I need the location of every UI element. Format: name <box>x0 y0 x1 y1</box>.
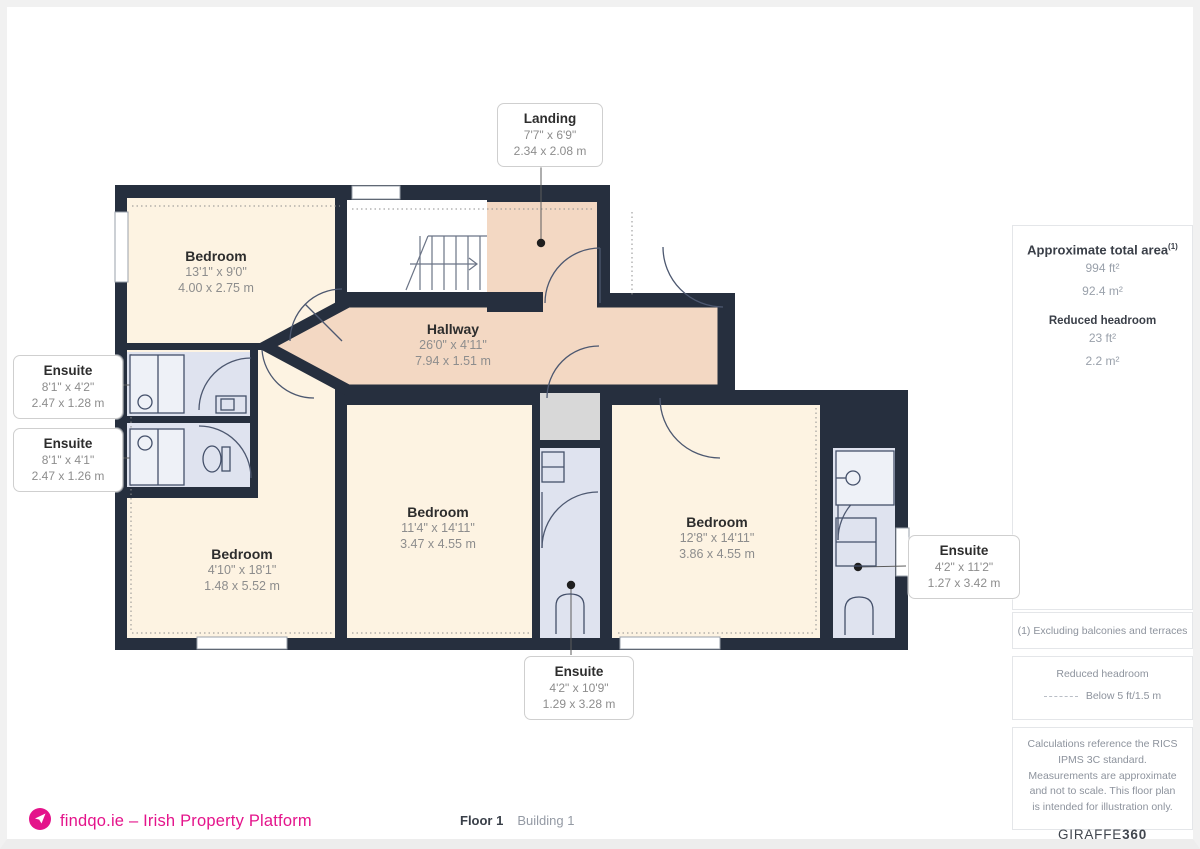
room-dims-ft: 11'4" x 14'11" <box>400 521 476 537</box>
room-name: Hallway <box>415 320 491 338</box>
ensuite-l2-label: Ensuite 8'1" x 4'1" 2.47 x 1.26 m <box>13 428 123 492</box>
area-summary-card: Approximate total area(1) 994 ft² 92.4 m… <box>1012 225 1193 610</box>
room-name: Ensuite <box>531 663 627 681</box>
vestibule-area <box>540 393 600 440</box>
bedroom-bl-label: Bedroom 4'10" x 18'1" 1.48 x 5.52 m <box>204 545 280 594</box>
legend-title: Reduced headroom <box>1013 668 1192 680</box>
room-dims-ft: 7'7" x 6'9" <box>504 128 596 144</box>
landing-label: Landing 7'7" x 6'9" 2.34 x 2.08 m <box>497 103 603 167</box>
stairwell-area <box>347 200 487 292</box>
room-name: Bedroom <box>204 545 280 563</box>
excluding-note-card: (1) Excluding balconies and terraces <box>1012 612 1193 649</box>
bedroom-c-label: Bedroom 11'4" x 14'11" 3.47 x 4.55 m <box>400 503 476 552</box>
room-dims-ft: 4'10" x 18'1" <box>204 563 280 579</box>
room-dims-m: 2.47 x 1.28 m <box>20 396 116 412</box>
total-area-ft: 994 ft² <box>1013 257 1192 280</box>
dashed-line-sample <box>1044 696 1078 697</box>
floor-label[interactable]: Floor 1 <box>460 813 503 828</box>
room-dims-m: 3.86 x 4.55 m <box>679 547 755 563</box>
room-dims-ft: 8'1" x 4'2" <box>20 380 116 396</box>
footer-bar: findqo.ie – Irish Property Platform Floo… <box>0 804 1200 840</box>
room-name: Ensuite <box>20 362 116 380</box>
reduced-headroom-title: Reduced headroom <box>1013 315 1192 327</box>
room-dims-m: 2.34 x 2.08 m <box>504 144 596 160</box>
findqo-brand-text: findqo.ie – Irish Property Platform <box>60 812 312 831</box>
findqo-branding: findqo.ie – Irish Property Platform <box>29 808 312 835</box>
room-dims-m: 1.48 x 5.52 m <box>204 579 280 595</box>
room-dims-ft: 13'1" x 9'0" <box>178 265 254 281</box>
room-name: Bedroom <box>178 247 254 265</box>
room-name: Bedroom <box>679 513 755 531</box>
ensuite-c-area <box>540 448 600 638</box>
room-name: Ensuite <box>20 435 116 453</box>
room-name: Ensuite <box>915 542 1013 560</box>
hallway-area <box>266 302 723 390</box>
room-name: Landing <box>504 110 596 128</box>
hallway-label: Hallway 26'0" x 4'11" 7.94 x 1.51 m <box>415 320 491 369</box>
reduced-headroom-legend-card: Reduced headroom Below 5 ft/1.5 m <box>1012 656 1193 720</box>
reduced-headroom-ft: 23 ft² <box>1013 327 1192 350</box>
room-dims-m: 4.00 x 2.75 m <box>178 281 254 297</box>
total-area-m: 92.4 m² <box>1013 280 1192 303</box>
floorplan-page: Landing 7'7" x 6'9" 2.34 x 2.08 m Ensuit… <box>0 0 1200 849</box>
ensuite-c-label: Ensuite 4'2" x 10'9" 1.29 x 3.28 m <box>524 656 634 720</box>
room-dims-m: 3.47 x 4.55 m <box>400 537 476 553</box>
building-label[interactable]: Building 1 <box>517 813 574 828</box>
findqo-logo-icon <box>29 808 51 835</box>
ensuite-l1-label: Ensuite 8'1" x 4'2" 2.47 x 1.28 m <box>13 355 123 419</box>
ensuite-r-label: Ensuite 4'2" x 11'2" 1.27 x 3.42 m <box>908 535 1020 599</box>
total-area-title: Approximate total area(1) <box>1013 242 1192 257</box>
room-dims-ft: 4'2" x 11'2" <box>915 560 1013 576</box>
room-dims-ft: 4'2" x 10'9" <box>531 681 627 697</box>
room-dims-m: 1.29 x 3.28 m <box>531 697 627 713</box>
room-dims-ft: 8'1" x 4'1" <box>20 453 116 469</box>
footnote-marker: (1) <box>1168 242 1178 251</box>
room-dims-m: 2.47 x 1.26 m <box>20 469 116 485</box>
room-dims-m: 7.94 x 1.51 m <box>415 354 491 370</box>
room-dims-ft: 26'0" x 4'11" <box>415 338 491 354</box>
floor-selector: Floor 1 Building 1 <box>460 813 574 828</box>
legend-label: Below 5 ft/1.5 m <box>1086 690 1161 702</box>
room-name: Bedroom <box>400 503 476 521</box>
room-dims-m: 1.27 x 3.42 m <box>915 576 1013 592</box>
room-dims-ft: 12'8" x 14'11" <box>679 531 755 547</box>
bedroom-r-label: Bedroom 12'8" x 14'11" 3.86 x 4.55 m <box>679 513 755 562</box>
reduced-headroom-m: 2.2 m² <box>1013 350 1192 373</box>
bedroom-tl-label: Bedroom 13'1" x 9'0" 4.00 x 2.75 m <box>178 247 254 296</box>
